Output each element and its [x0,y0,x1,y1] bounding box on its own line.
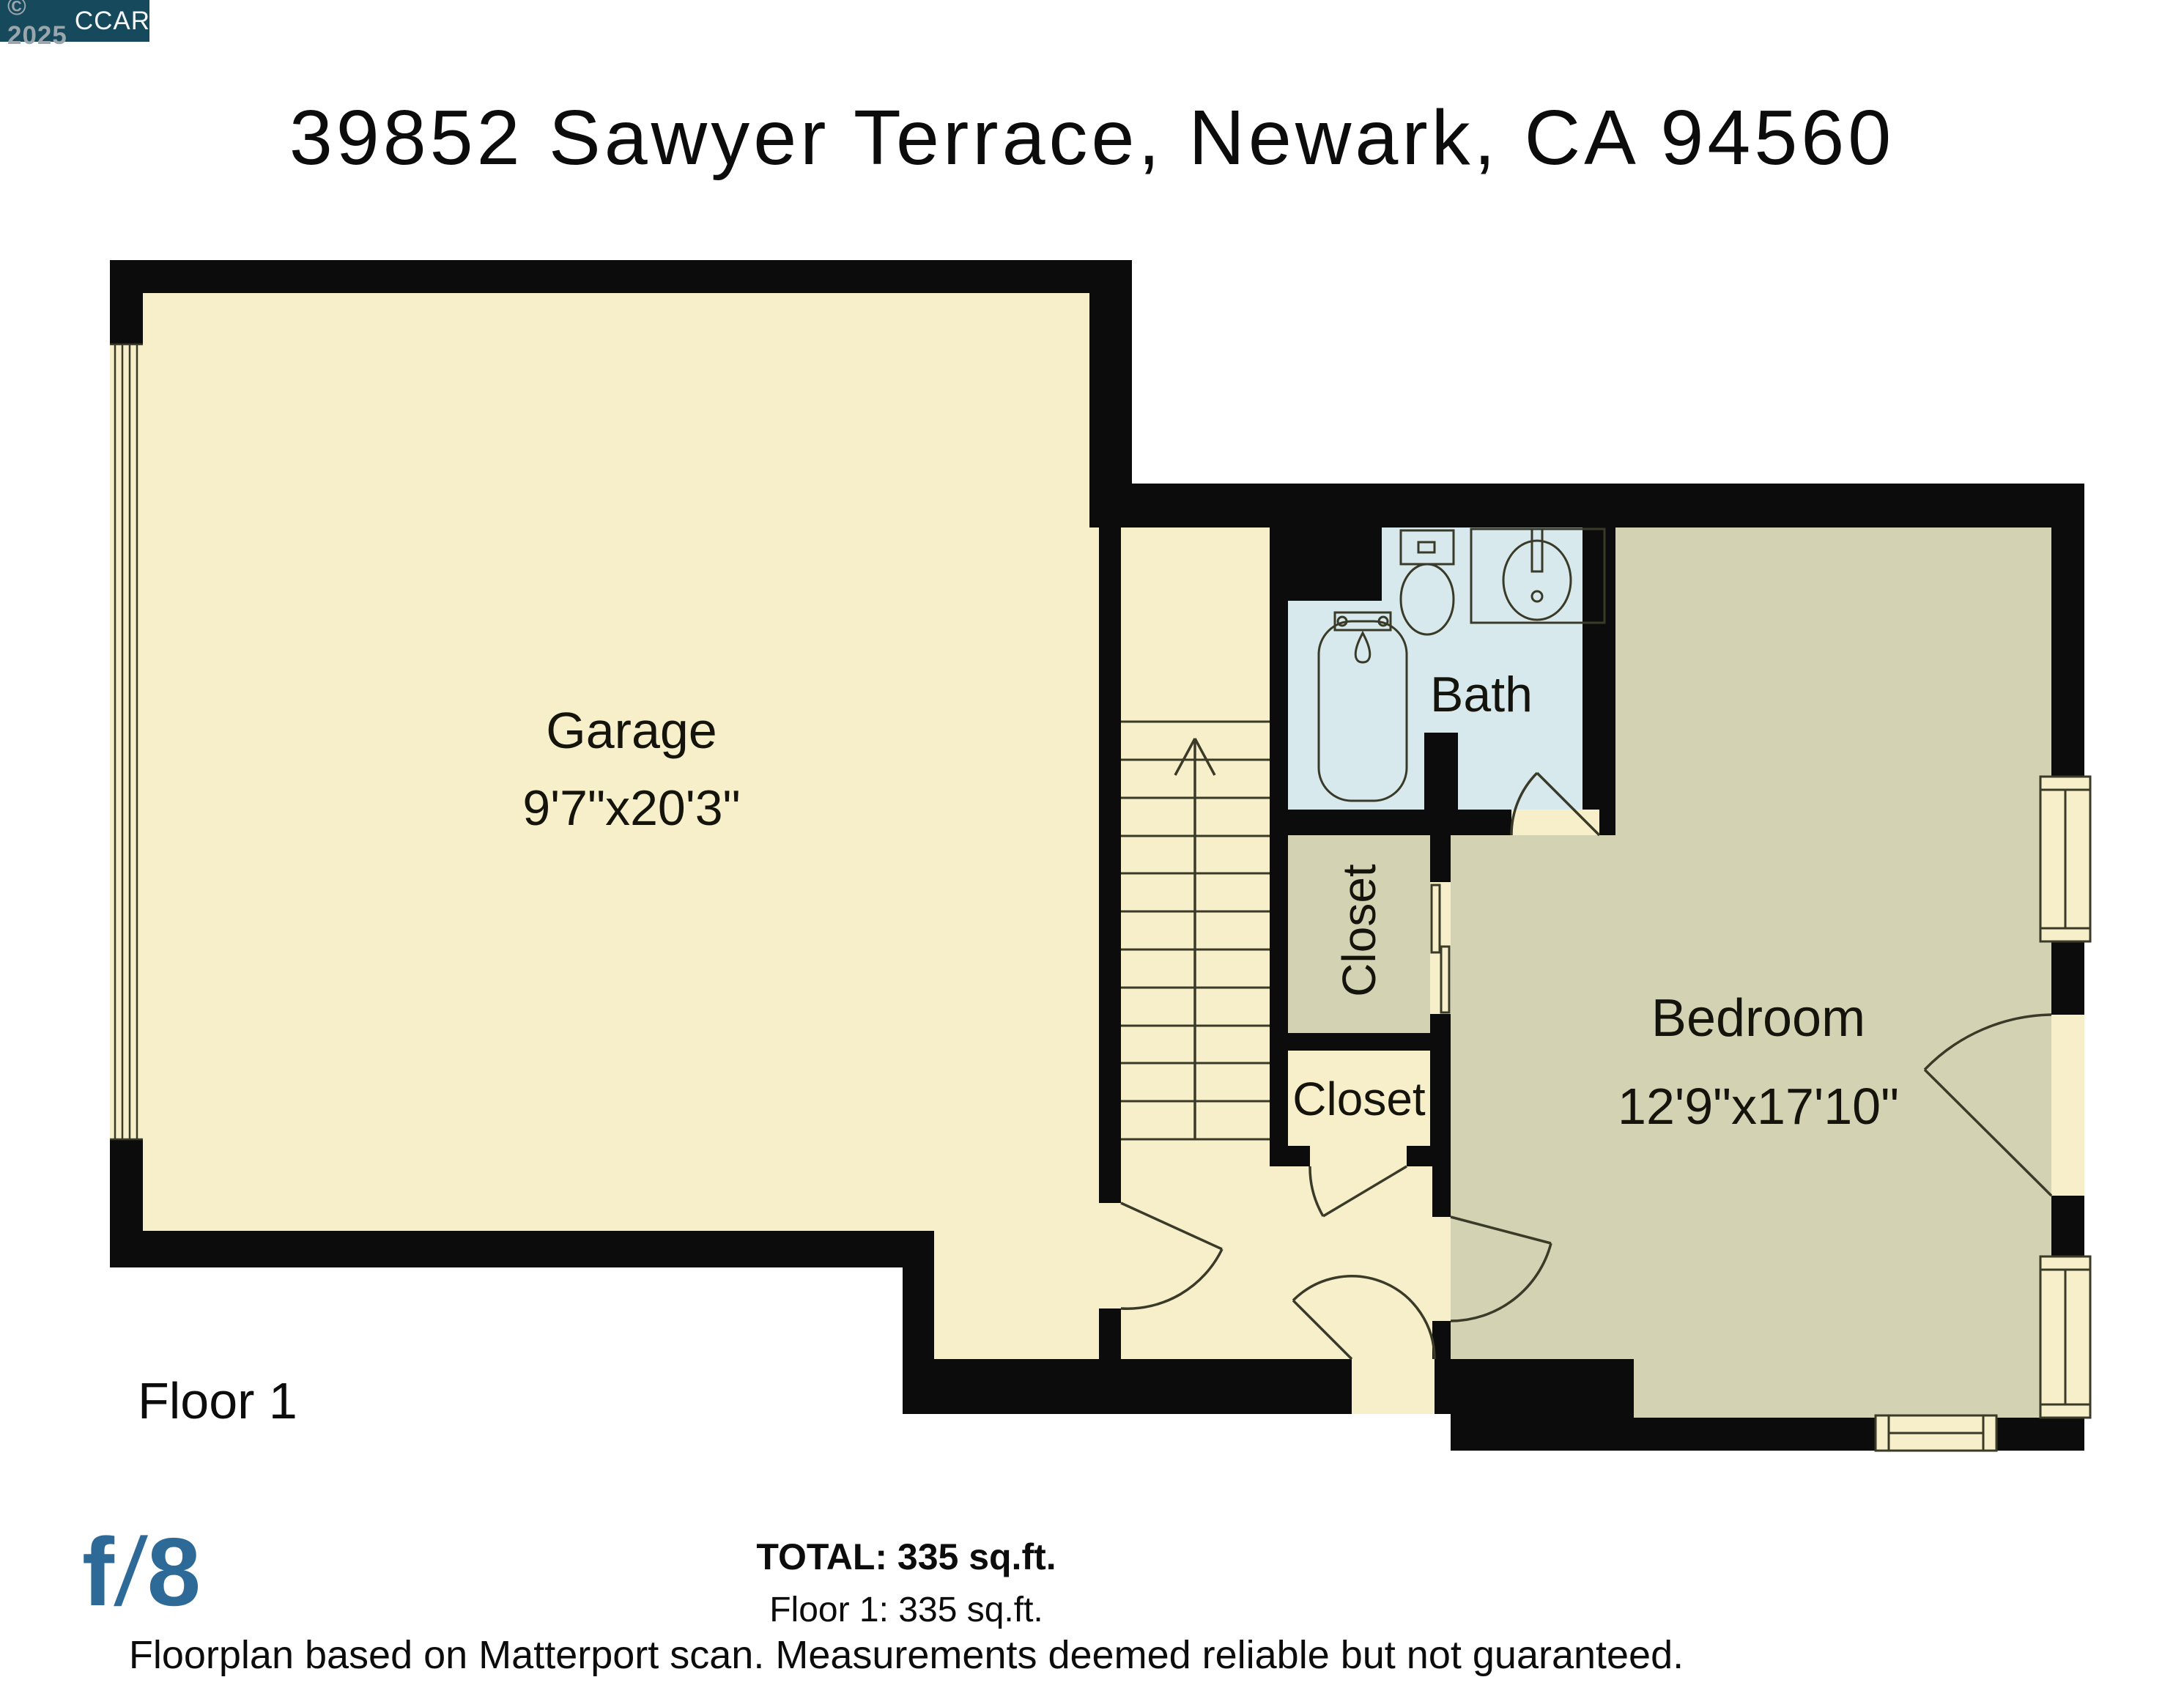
bedroom-window-right-upper [2040,777,2090,941]
garage-door [110,344,143,1139]
f8-logo-f: f [82,1524,114,1621]
garage-hall-door-opening [1099,1203,1121,1308]
closet-door-opening [1310,1146,1407,1166]
bedroom-window-right-lower [2040,1256,2090,1418]
bedroom-dimensions: 12'9"x17'10" [1618,1077,1899,1136]
closet-upper-label: Closet [1332,864,1386,996]
f8-logo-eight: 8 [147,1524,201,1621]
floorplan-page: © 2025 CCAR 39852 Sawyer Terrace, Newark… [0,0,2184,1688]
garage-label: Garage [546,701,717,760]
front-door-opening [1352,1359,1435,1414]
closet-sliding-door [1430,882,1451,1014]
floor-label: Floor 1 [138,1371,297,1430]
bedroom-label: Bedroom [1651,988,1865,1048]
garage-dimensions: 9'7"x20'3" [522,780,740,837]
total-area-text: TOTAL: 335 sq.ft. [756,1536,1056,1578]
f8-logo-slash: / [112,1524,149,1621]
bedroom-exterior-door-opening [2051,1015,2084,1196]
closet-lower-label: Closet [1292,1072,1425,1126]
bedroom-window-bottom [1876,1415,1996,1451]
disclaimer-text: Floorplan based on Matterport scan. Meas… [129,1632,1684,1678]
floorplan-drawing [0,0,2184,1688]
f8-logo: f / 8 [82,1524,201,1621]
floor-area-text: Floor 1: 335 sq.ft. [769,1590,1043,1630]
bath-label: Bath [1430,666,1533,723]
bedroom-door-opening [1432,1217,1451,1321]
